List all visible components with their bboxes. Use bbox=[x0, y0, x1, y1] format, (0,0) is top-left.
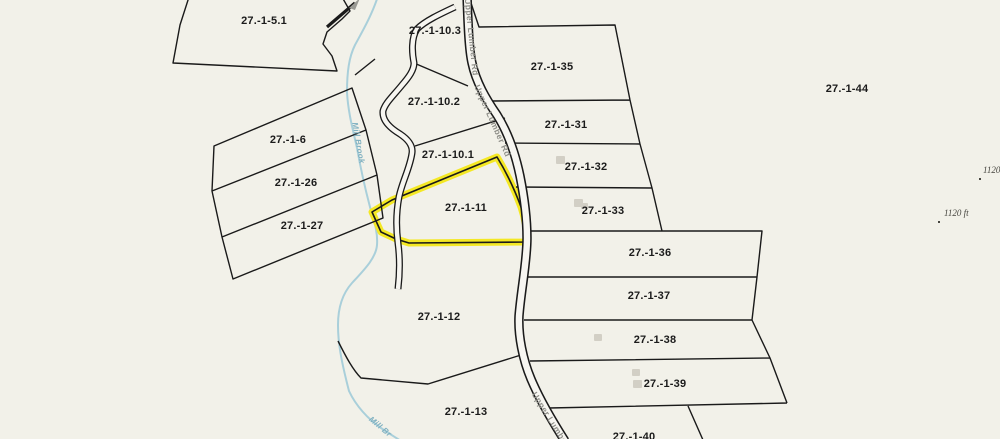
parcel-label-27-1-33: 27.-1-33 bbox=[582, 205, 625, 217]
map-background bbox=[0, 0, 1000, 439]
parcel-label-27-1-27: 27.-1-27 bbox=[281, 220, 324, 232]
parcel-label-27-1-10-2: 27.-1-10.2 bbox=[408, 96, 460, 108]
parcel-label-highlighted: 27.-1-11 bbox=[445, 202, 487, 214]
parcel-label-27-1-6: 27.-1-6 bbox=[270, 134, 306, 146]
elevation-dot bbox=[979, 178, 981, 180]
parcel-label-27-1-37: 27.-1-37 bbox=[628, 290, 671, 302]
parcel-label-27-1-40: 27.-1-40 bbox=[613, 431, 656, 439]
parcel-label-27-1-26: 27.-1-26 bbox=[275, 177, 318, 189]
parcel-label-27-1-10-1: 27.-1-10.1 bbox=[422, 149, 474, 161]
elevation-label: 1120 ft bbox=[983, 165, 1000, 175]
parcel-label-27-1-12: 27.-1-12 bbox=[418, 311, 461, 323]
parcel-label-27-1-39: 27.-1-39 bbox=[644, 378, 687, 390]
elevation-dot bbox=[938, 221, 940, 223]
parcel-label-27-1-38: 27.-1-38 bbox=[634, 334, 677, 346]
tax-parcel-map[interactable]: Upper Lumber RdUpper Lumber RdUpper Lumb… bbox=[0, 0, 1000, 439]
parcel-label-27-1-36: 27.-1-36 bbox=[629, 247, 672, 259]
building-icon bbox=[633, 380, 642, 388]
parcel-label-27-1-35: 27.-1-35 bbox=[531, 61, 574, 73]
parcel-label-27-1-5-1: 27.-1-5.1 bbox=[241, 15, 287, 27]
parcel-map-canvas[interactable]: Upper Lumber RdUpper Lumber RdUpper Lumb… bbox=[0, 0, 1000, 439]
parcel-label-27-1-13: 27.-1-13 bbox=[445, 406, 488, 418]
parcel-label-27-1-10-3: 27.-1-10.3 bbox=[409, 25, 461, 37]
building-icon bbox=[556, 156, 565, 164]
parcel-label-27-1-31: 27.-1-31 bbox=[545, 119, 588, 131]
parcel-label-27-1-32: 27.-1-32 bbox=[565, 161, 608, 173]
parcel-label-27-1-44: 27.-1-44 bbox=[826, 83, 869, 95]
building-icon bbox=[594, 334, 602, 341]
building-icon bbox=[632, 369, 640, 376]
elevation-label: 1120 ft bbox=[944, 208, 969, 218]
